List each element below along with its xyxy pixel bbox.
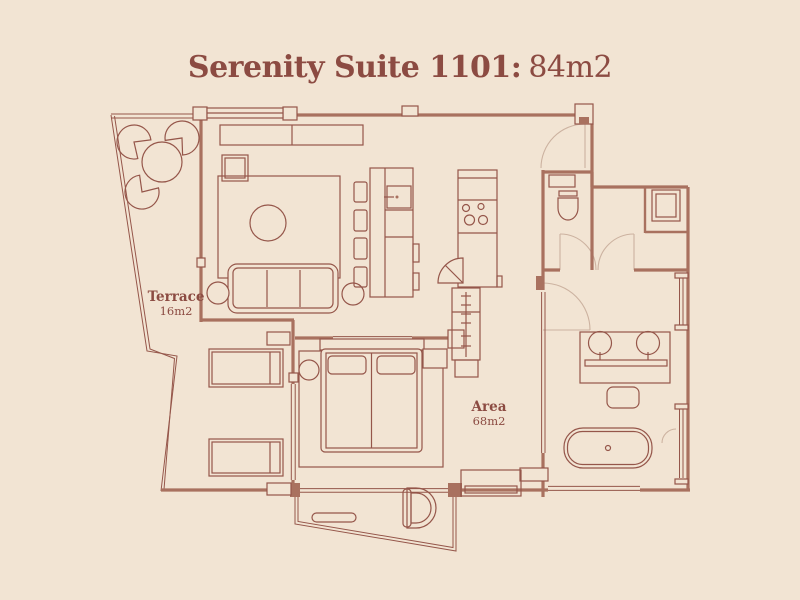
kitchen-counter — [458, 170, 497, 287]
sun-lounger — [209, 349, 283, 387]
bar-stool — [354, 210, 367, 231]
sofa — [228, 264, 338, 313]
cooktop-burner — [463, 205, 470, 212]
side-table — [342, 283, 364, 305]
cooktop-burner — [479, 216, 488, 225]
side-table — [207, 282, 229, 304]
vanity — [580, 332, 670, 383]
bed-headboard — [320, 339, 424, 350]
kitchen-island — [370, 168, 413, 297]
cooktop-burner — [465, 215, 475, 225]
terrace-chair — [117, 125, 151, 159]
armchair — [222, 155, 248, 181]
bedroom-group — [299, 339, 447, 467]
bench — [461, 470, 521, 496]
page-title: Serenity Suite 1101:84m2 — [188, 50, 612, 85]
bar-stool — [354, 238, 367, 259]
ottoman — [607, 387, 639, 408]
balcony-group — [312, 470, 521, 528]
living-room-group — [207, 125, 364, 313]
bathtub — [564, 428, 652, 468]
area-label: Area — [471, 399, 507, 415]
terrace-table — [142, 142, 182, 182]
floor-plan-page: Serenity Suite 1101:84m2 Terrace 16m2 Ar… — [0, 0, 800, 600]
sink — [637, 332, 660, 355]
living-rug — [218, 176, 340, 278]
coffee-table — [250, 205, 286, 241]
sink — [589, 332, 612, 355]
cooktop-burner — [478, 204, 484, 210]
toilet — [558, 198, 578, 220]
terrace-chair — [165, 121, 199, 155]
floor-plan-drawing: Serenity Suite 1101:84m2 Terrace 16m2 Ar… — [0, 0, 800, 600]
door-mat — [312, 513, 356, 522]
wc-group — [549, 175, 680, 221]
bedside-table — [299, 360, 319, 380]
nightstand — [423, 349, 447, 368]
area-value: 68m2 — [473, 414, 506, 428]
bathroom-group — [564, 332, 670, 469]
bar-stool — [354, 182, 367, 202]
terrace-label: Terrace — [148, 289, 205, 305]
terrace-area: 16m2 — [160, 304, 193, 318]
toilet-cistern — [549, 175, 575, 187]
sun-lounger — [209, 439, 283, 476]
